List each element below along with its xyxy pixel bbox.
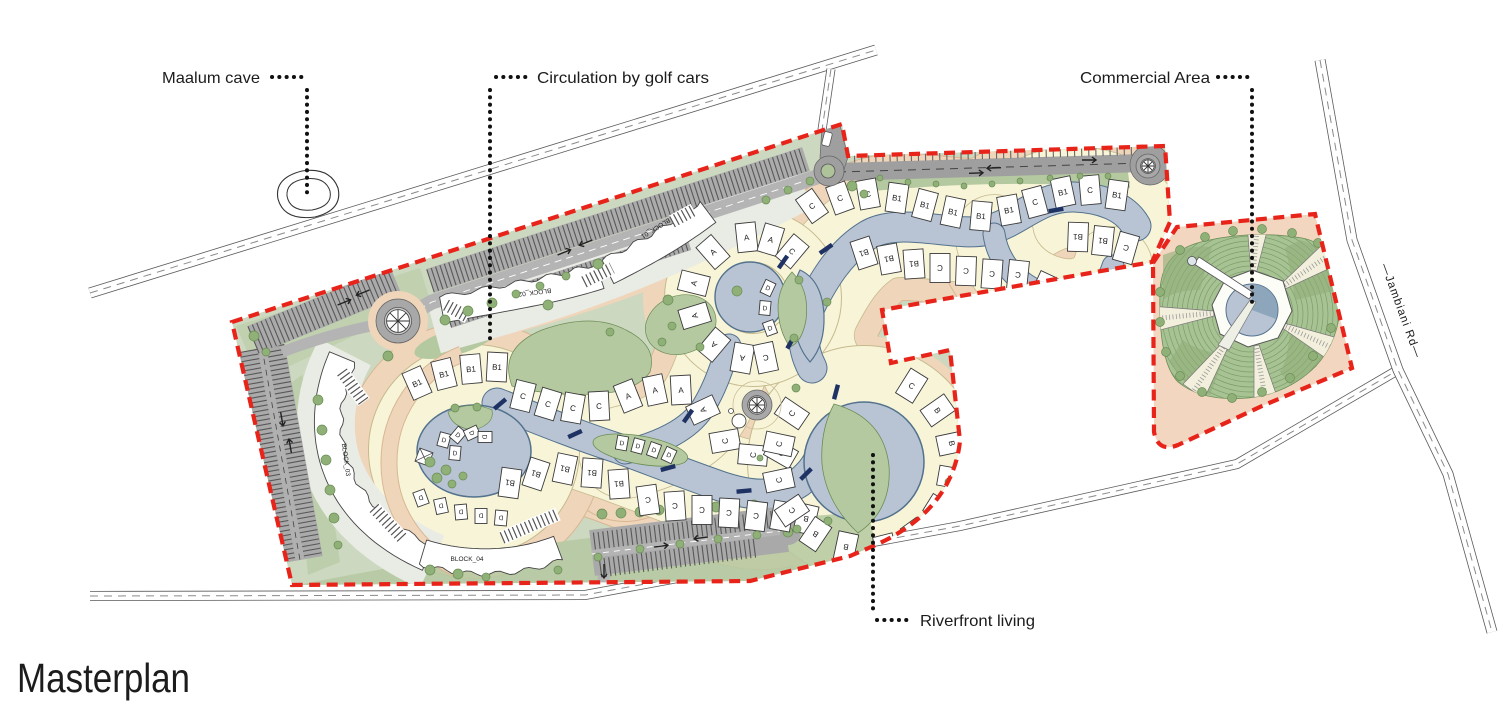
svg-text:BLOCK_04: BLOCK_04 [451,556,484,563]
svg-text:D: D [452,450,458,457]
svg-text:D: D [478,512,483,519]
svg-text:B1: B1 [504,477,515,487]
svg-text:C: C [726,508,732,517]
svg-text:C: C [989,269,996,278]
svg-text:B1: B1 [492,363,503,373]
svg-text:C: C [1087,186,1094,195]
svg-text:B1: B1 [1072,232,1083,241]
svg-text:D: D [498,513,504,520]
svg-text:B1: B1 [1111,190,1122,200]
svg-text:D: D [481,435,488,440]
svg-text:Masterplan: Masterplan [17,655,190,701]
svg-text:B1: B1 [908,259,919,269]
svg-text:B1: B1 [613,479,624,489]
svg-text:B1: B1 [976,211,987,221]
svg-text:C: C [596,402,602,411]
svg-text:Riverfront living: Riverfront living [920,613,1035,630]
svg-text:D: D [762,305,768,312]
svg-text:C: C [937,263,943,272]
svg-text:B1: B1 [891,193,902,203]
svg-text:Commercial Area: Commercial Area [1080,70,1210,87]
svg-text:B1: B1 [466,364,477,374]
svg-text:C: C [699,505,705,514]
svg-text:Maalum cave: Maalum cave [162,70,260,87]
svg-text:Circulation by golf cars: Circulation by golf cars [537,70,709,87]
svg-text:C: C [963,266,969,275]
svg-text:C: C [672,501,679,510]
svg-text:D: D [458,508,464,515]
svg-text:B1: B1 [1097,236,1108,246]
svg-text:B1: B1 [586,468,597,478]
svg-text:C: C [1014,270,1021,280]
